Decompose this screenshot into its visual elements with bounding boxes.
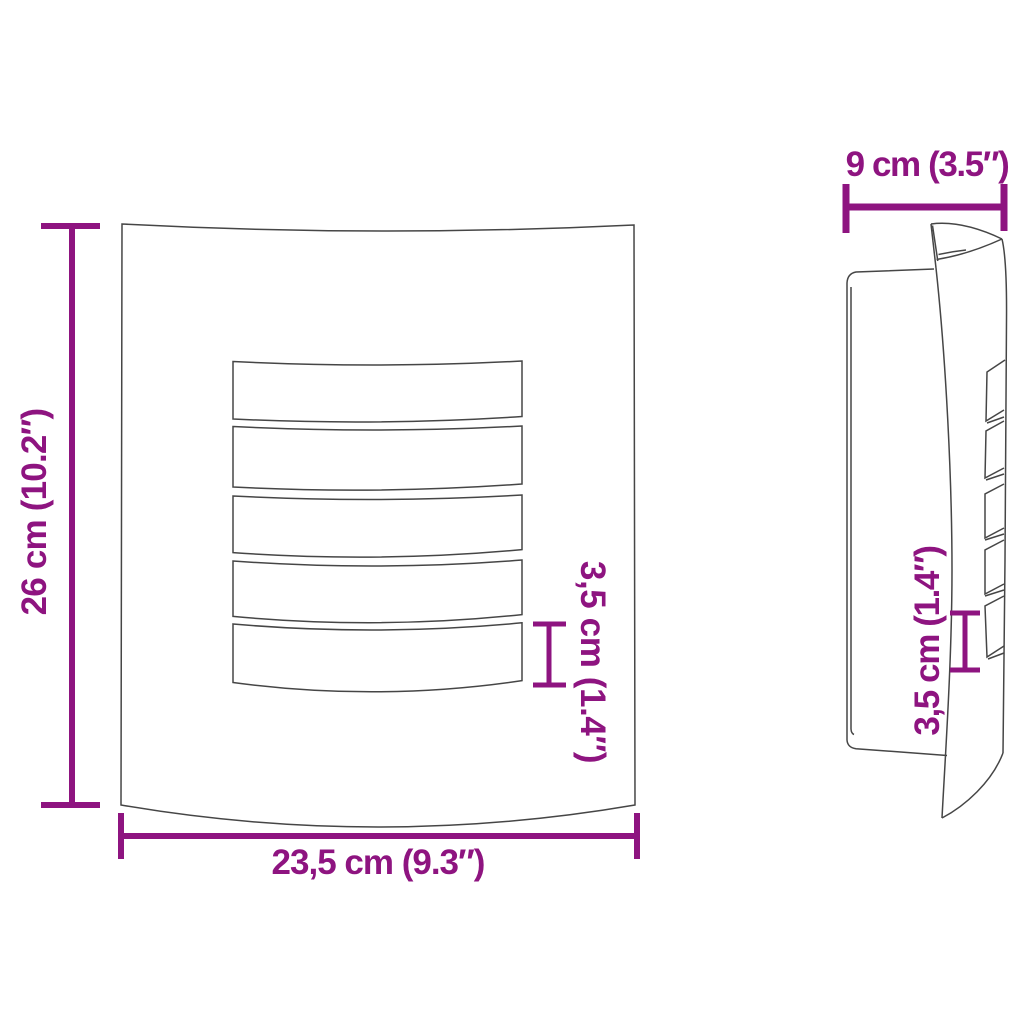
svg-text:26 cm (10.2″): 26 cm (10.2″) <box>15 409 54 616</box>
svg-text:23,5 cm (9.3″): 23,5 cm (9.3″) <box>272 843 485 882</box>
svg-text:9 cm (3.5″): 9 cm (3.5″) <box>846 145 1009 184</box>
svg-text:3,5 cm (1.4″): 3,5 cm (1.4″) <box>908 546 947 735</box>
svg-text:3,5 cm (1.4″): 3,5 cm (1.4″) <box>573 561 612 763</box>
